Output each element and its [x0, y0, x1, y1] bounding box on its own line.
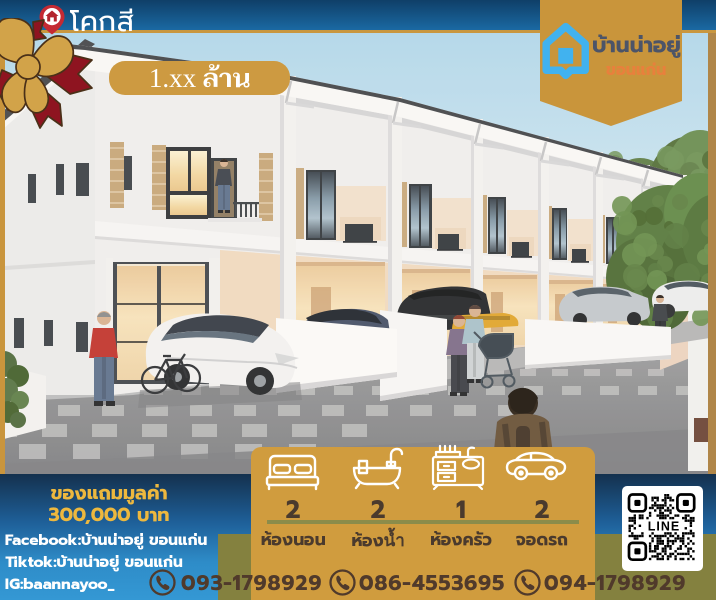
svg-text:LINE: LINE [648, 520, 680, 534]
